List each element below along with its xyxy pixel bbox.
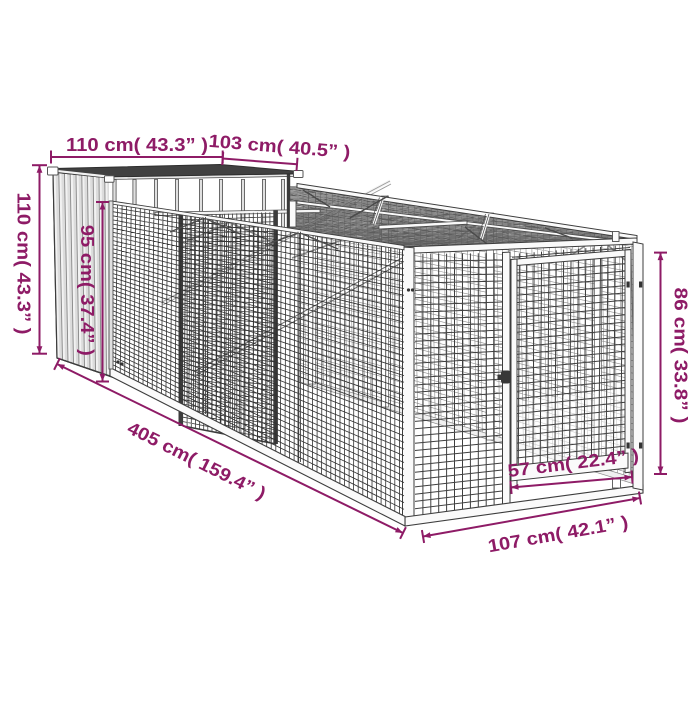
svg-text:86 cm( 33.8” ): 86 cm( 33.8” ) <box>671 288 691 424</box>
svg-text:95 cm( 37.4” ): 95 cm( 37.4” ) <box>77 225 97 356</box>
svg-text:110 cm( 43.3” ): 110 cm( 43.3” ) <box>14 193 34 335</box>
svg-text:110 cm( 43.3” ): 110 cm( 43.3” ) <box>66 135 208 155</box>
